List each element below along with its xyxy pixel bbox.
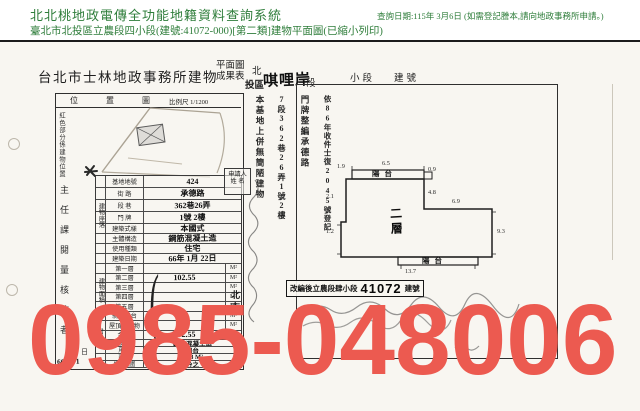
district-rest: 投區 (245, 77, 264, 91)
building-structure-group: 建築式樣 本國式 主體構造 鋼筋混凝土造 使用種類 住宅 建築日 (96, 224, 241, 264)
subsection-label: 小段 (350, 70, 375, 84)
table-row: 段 巷 362巷26弄 (96, 200, 241, 212)
table-row: 第一層 M² (96, 264, 241, 274)
spine-building-location: 建物座落 (97, 175, 106, 255)
district-char: 北 (252, 63, 262, 77)
table-row: 建築式樣 本國式 (96, 224, 241, 234)
row-label: 建築式樣 (106, 224, 144, 233)
watermark-phone-number: 0985-048006 (28, 290, 617, 390)
table-row: 第二層 102.55 M² (96, 274, 241, 284)
location-map-sketch (92, 100, 242, 182)
row-label: 街 路 (106, 188, 144, 199)
punch-hole (8, 138, 20, 150)
scan-edge-line (612, 84, 613, 260)
row-label: 門 牌 (106, 212, 144, 223)
row-label: 基地地號 (106, 176, 144, 187)
row-label: 段 巷 (106, 200, 144, 211)
row-label: 第一層 (106, 264, 144, 273)
document-subtitle: 臺北市北投區立農段四小段(建號:41072-000)[第二類]建物平面圖(已縮小… (30, 23, 383, 38)
building-location-group: 基地地號 424 街 路 承德路 段 巷 362巷26弄 門 (96, 176, 241, 224)
title-plan: 平面圖 (216, 61, 245, 72)
dim-top-left: 1.9 (337, 163, 345, 170)
row-label: 主體構造 (106, 234, 144, 243)
dim-top: 6.5 (382, 160, 390, 167)
row-label: 第二層 (106, 274, 144, 283)
system-title: 北北桃地政電傳全功能地籍資料查詢系統 (30, 5, 282, 24)
punch-hole (6, 284, 18, 296)
row-label: 使用種類 (106, 244, 144, 253)
table-row: 建築日期 66年 1月 22日 (96, 254, 241, 264)
building-no-label: 建號 (394, 70, 419, 84)
red-area-note: 紅色部分係建物位置 (57, 112, 66, 178)
table-row: 街 路 承德路 (96, 188, 241, 200)
screen: 北北桃地政電傳全功能地籍資料查詢系統 查詢日期:115年 3月6日 (如需登記謄… (0, 0, 640, 411)
table-row: 基地地號 424 (96, 176, 241, 188)
table-row: 門 牌 1號 2樓 (96, 212, 241, 224)
table-row: 主體構造 鋼筋混凝土造 (96, 234, 241, 244)
title-result: 成果表 (216, 72, 245, 83)
title-stack: 平面圖 成果表 (216, 61, 245, 83)
table-row: 使用種類 住宅 (96, 244, 241, 254)
row-label: 建築日期 (106, 254, 144, 263)
office-title: 台北市士林地政事務所建物 (38, 66, 218, 86)
query-date-note: 查詢日期:115年 3月6日 (如需登記謄本,請向地政事務所申請。) (377, 10, 604, 22)
